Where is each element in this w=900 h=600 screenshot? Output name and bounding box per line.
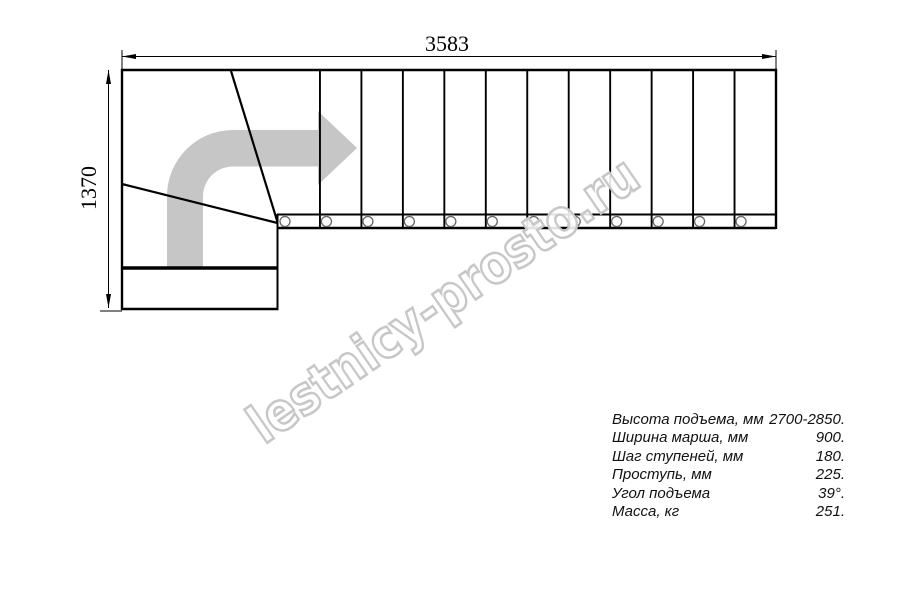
bolt-icon	[446, 217, 456, 227]
spec-value: 251.	[816, 503, 845, 521]
spec-value: 180.	[816, 448, 845, 466]
spec-row: Масса, кг 251.	[612, 503, 845, 521]
bolt-icon	[280, 217, 290, 227]
spec-row: Шаг ступеней, мм 180.	[612, 448, 845, 466]
spec-row: Проступь, мм 225.	[612, 466, 845, 484]
dim-arrow-right-icon	[762, 54, 776, 59]
spec-row: Высота подъема, мм 2700-2850.	[612, 411, 845, 429]
bolt-icon	[363, 217, 373, 227]
spec-label: Шаг ступеней, мм	[612, 448, 743, 466]
direction-arrow	[167, 111, 357, 268]
bolt-icon	[736, 217, 746, 227]
spec-label: Ширина марша, мм	[612, 429, 748, 447]
dimension-left: 1370	[76, 70, 122, 311]
tread-dividers	[320, 70, 735, 228]
spec-label: Масса, кг	[612, 503, 679, 521]
bolt-icon	[695, 217, 705, 227]
bolt-icon	[321, 217, 331, 227]
spec-value: 39°.	[818, 485, 845, 503]
bolt-icon	[404, 217, 414, 227]
spec-label: Проступь, мм	[612, 466, 712, 484]
dim-arrow-left-icon	[122, 54, 136, 59]
bolt-icon	[487, 217, 497, 227]
bolt-icon	[653, 217, 663, 227]
spec-value: 900.	[816, 429, 845, 447]
spec-label: Высота подъема, мм	[612, 411, 764, 429]
dim-arrow-up-icon	[106, 70, 111, 84]
spec-row: Угол подъема 39°.	[612, 485, 845, 503]
spec-value: 225.	[816, 466, 845, 484]
stair-plan-page: 3583 1370 lestnicy-prosto.ru Высота подъ…	[0, 0, 900, 600]
spec-label: Угол подъема	[612, 485, 710, 503]
spec-table: Высота подъема, мм 2700-2850. Ширина мар…	[612, 411, 845, 521]
dimension-top: 3583	[122, 31, 776, 69]
dim-arrow-down-icon	[106, 294, 111, 308]
spec-row: Ширина марша, мм 900.	[612, 429, 845, 447]
dimension-left-value: 1370	[76, 166, 101, 210]
spec-value: 2700-2850.	[769, 411, 845, 429]
dimension-top-value: 3583	[425, 31, 469, 56]
